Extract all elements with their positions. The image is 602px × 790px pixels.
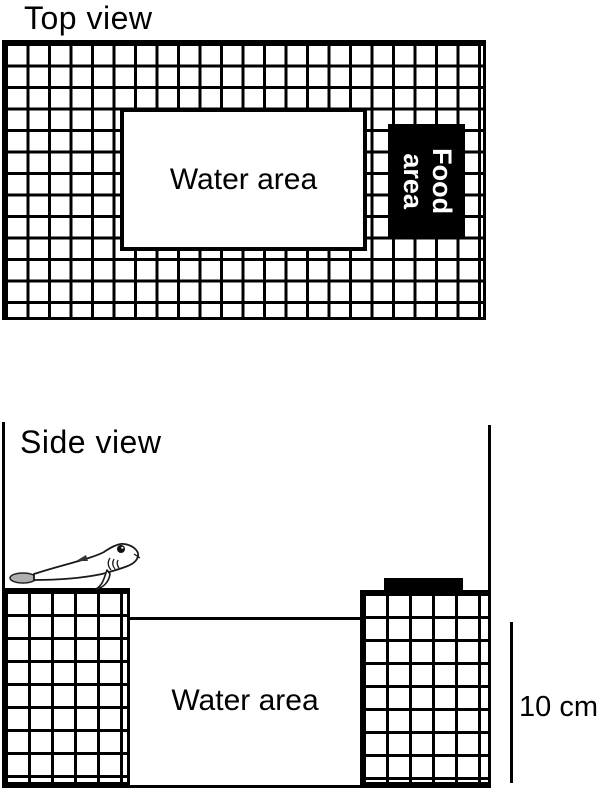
side-view-food-bar xyxy=(384,578,463,592)
scale-bar-line xyxy=(510,622,513,783)
top-view-water-area-label: Water area xyxy=(170,163,317,197)
side-view-right-platform-grid xyxy=(360,590,491,785)
scale-bar-label: 10 cm xyxy=(519,691,598,724)
top-view-food-area: Food area xyxy=(388,124,465,238)
side-view-water-area-label: Water area xyxy=(130,684,360,718)
mudskipper-fish-icon xyxy=(6,538,146,592)
food-area-label-line2: area xyxy=(397,148,426,214)
side-view-left-platform-grid xyxy=(2,588,130,785)
water-surface-line xyxy=(130,617,360,620)
side-view-title: Side view xyxy=(20,424,161,461)
experiment-setup-figure: Top view Water area Food area Side view … xyxy=(0,0,602,790)
top-view-water-area: Water area xyxy=(120,108,367,251)
top-view-food-area-label: Food area xyxy=(397,148,455,214)
top-view-title: Top view xyxy=(24,0,153,37)
food-area-label-line1: Food xyxy=(426,148,455,214)
side-view-floor xyxy=(2,785,491,788)
